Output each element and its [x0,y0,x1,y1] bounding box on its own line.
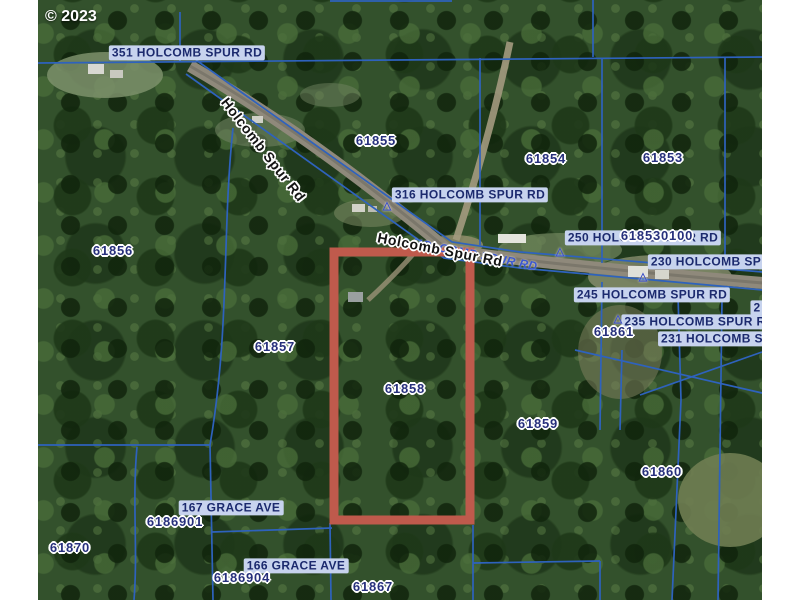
parcel-label: 618530100 [621,229,693,243]
right-margin-strip [762,0,800,600]
parcel-label: 61859 [518,417,558,431]
parcel-label: 61855 [356,134,396,148]
address-label: 230 HOLCOMB SP [648,254,764,269]
parcel-label: 61867 [353,580,393,594]
parcel-label: 61861 [594,325,634,339]
site-marker-icon: △ [556,246,564,258]
parcel-label: 61860 [642,465,682,479]
address-label: 235 HOLCOMB SPUR R [621,314,768,329]
parcel-label: 6186901 [147,515,203,529]
parcel-label: 61853 [643,151,683,165]
address-label: 316 HOLCOMB SPUR RD [392,187,548,202]
parcel-map-viewport: 351 HOLCOMB SPUR RD316 HOLCOMB SPUR RD25… [0,0,800,600]
left-margin-strip [0,0,38,600]
parcel-label: 61854 [526,152,566,166]
address-label: 231 HOLCOMB S [658,331,766,346]
address-label: 351 HOLCOMB SPUR RD [109,45,265,60]
parcel-label: 61870 [50,541,90,555]
site-marker-icon: △ [614,313,622,325]
parcel-label: 61857 [255,340,295,354]
site-marker-icon: △ [639,271,647,283]
address-label: 245 HOLCOMB SPUR RD [574,287,730,302]
road-label: Holcomb Spur Rd [218,95,308,205]
road-label: Holcomb Spur Rd [376,230,504,269]
parcel-label: 61858 [385,382,425,396]
parcel-label: 6186904 [214,571,270,585]
labels-layer: 351 HOLCOMB SPUR RD316 HOLCOMB SPUR RD25… [0,0,800,600]
copyright-text: © 2023 [45,8,97,26]
site-marker-icon: △ [383,200,391,212]
parcel-label: 61856 [93,244,133,258]
